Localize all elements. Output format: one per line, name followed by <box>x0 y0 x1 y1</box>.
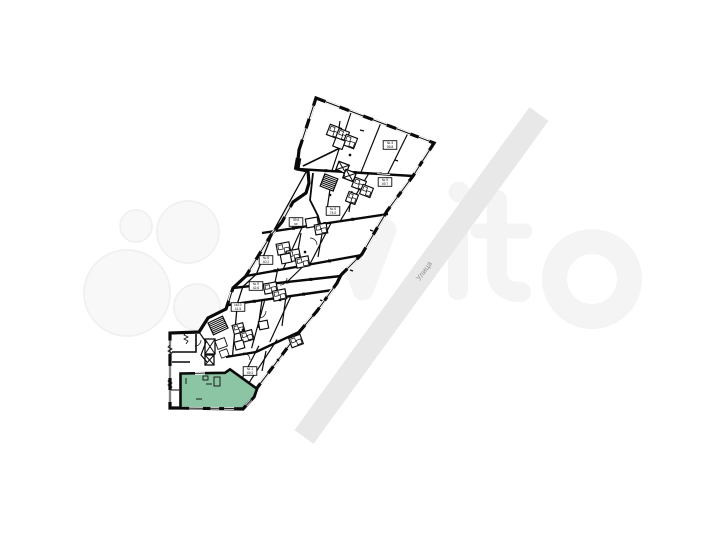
svg-text:49.2: 49.2 <box>247 371 254 375</box>
svg-text:49.7: 49.7 <box>382 182 389 186</box>
svg-text:41.5: 41.5 <box>235 307 242 311</box>
svg-text:42.6: 42.6 <box>253 286 260 290</box>
svg-text:36.8: 36.8 <box>387 145 394 149</box>
svg-text:40.2: 40.2 <box>263 260 270 264</box>
svg-text:74.0: 74.0 <box>330 211 337 215</box>
